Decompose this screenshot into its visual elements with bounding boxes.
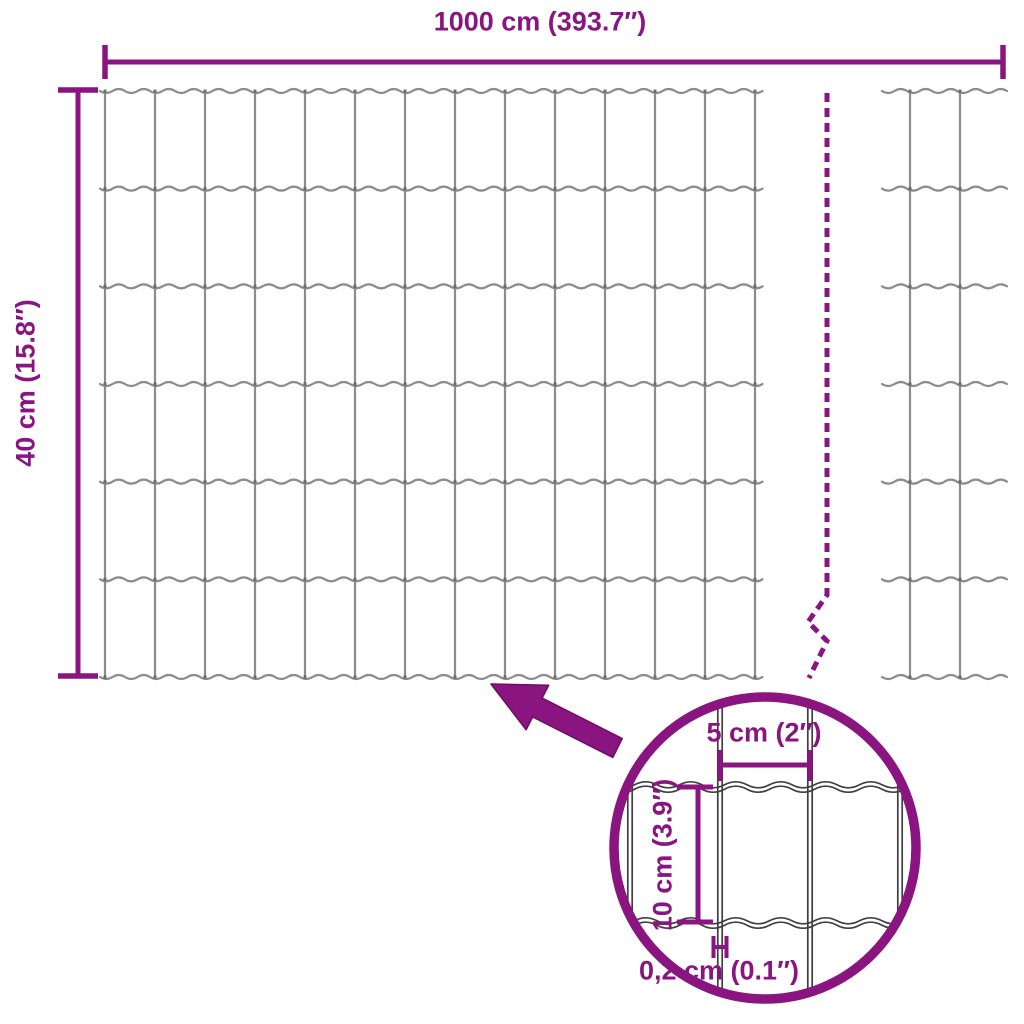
diagram-canvas bbox=[0, 0, 1024, 1024]
wire-thickness-label: 0,2 cm (0.1″) bbox=[639, 958, 799, 985]
break-line bbox=[808, 93, 827, 678]
product-dimension-diagram: 1000 cm (393.7″) 40 cm (15.8″) 5 cm (2″)… bbox=[0, 0, 1024, 1024]
width-label: 1000 cm (393.7″) bbox=[434, 9, 647, 36]
left-height-dimension bbox=[58, 90, 98, 677]
height-label: 40 cm (15.8″) bbox=[13, 299, 40, 467]
fence-mesh-continuation bbox=[882, 89, 1007, 679]
detail-mesh-height-label: 10 cm (3.9″) bbox=[650, 779, 677, 932]
fence-mesh-main bbox=[100, 89, 763, 679]
detail-mesh-width-label: 5 cm (2″) bbox=[707, 720, 822, 747]
detail-dimensions bbox=[677, 750, 810, 958]
top-width-dimension bbox=[105, 45, 1003, 79]
magnifier-arrow bbox=[491, 684, 622, 757]
